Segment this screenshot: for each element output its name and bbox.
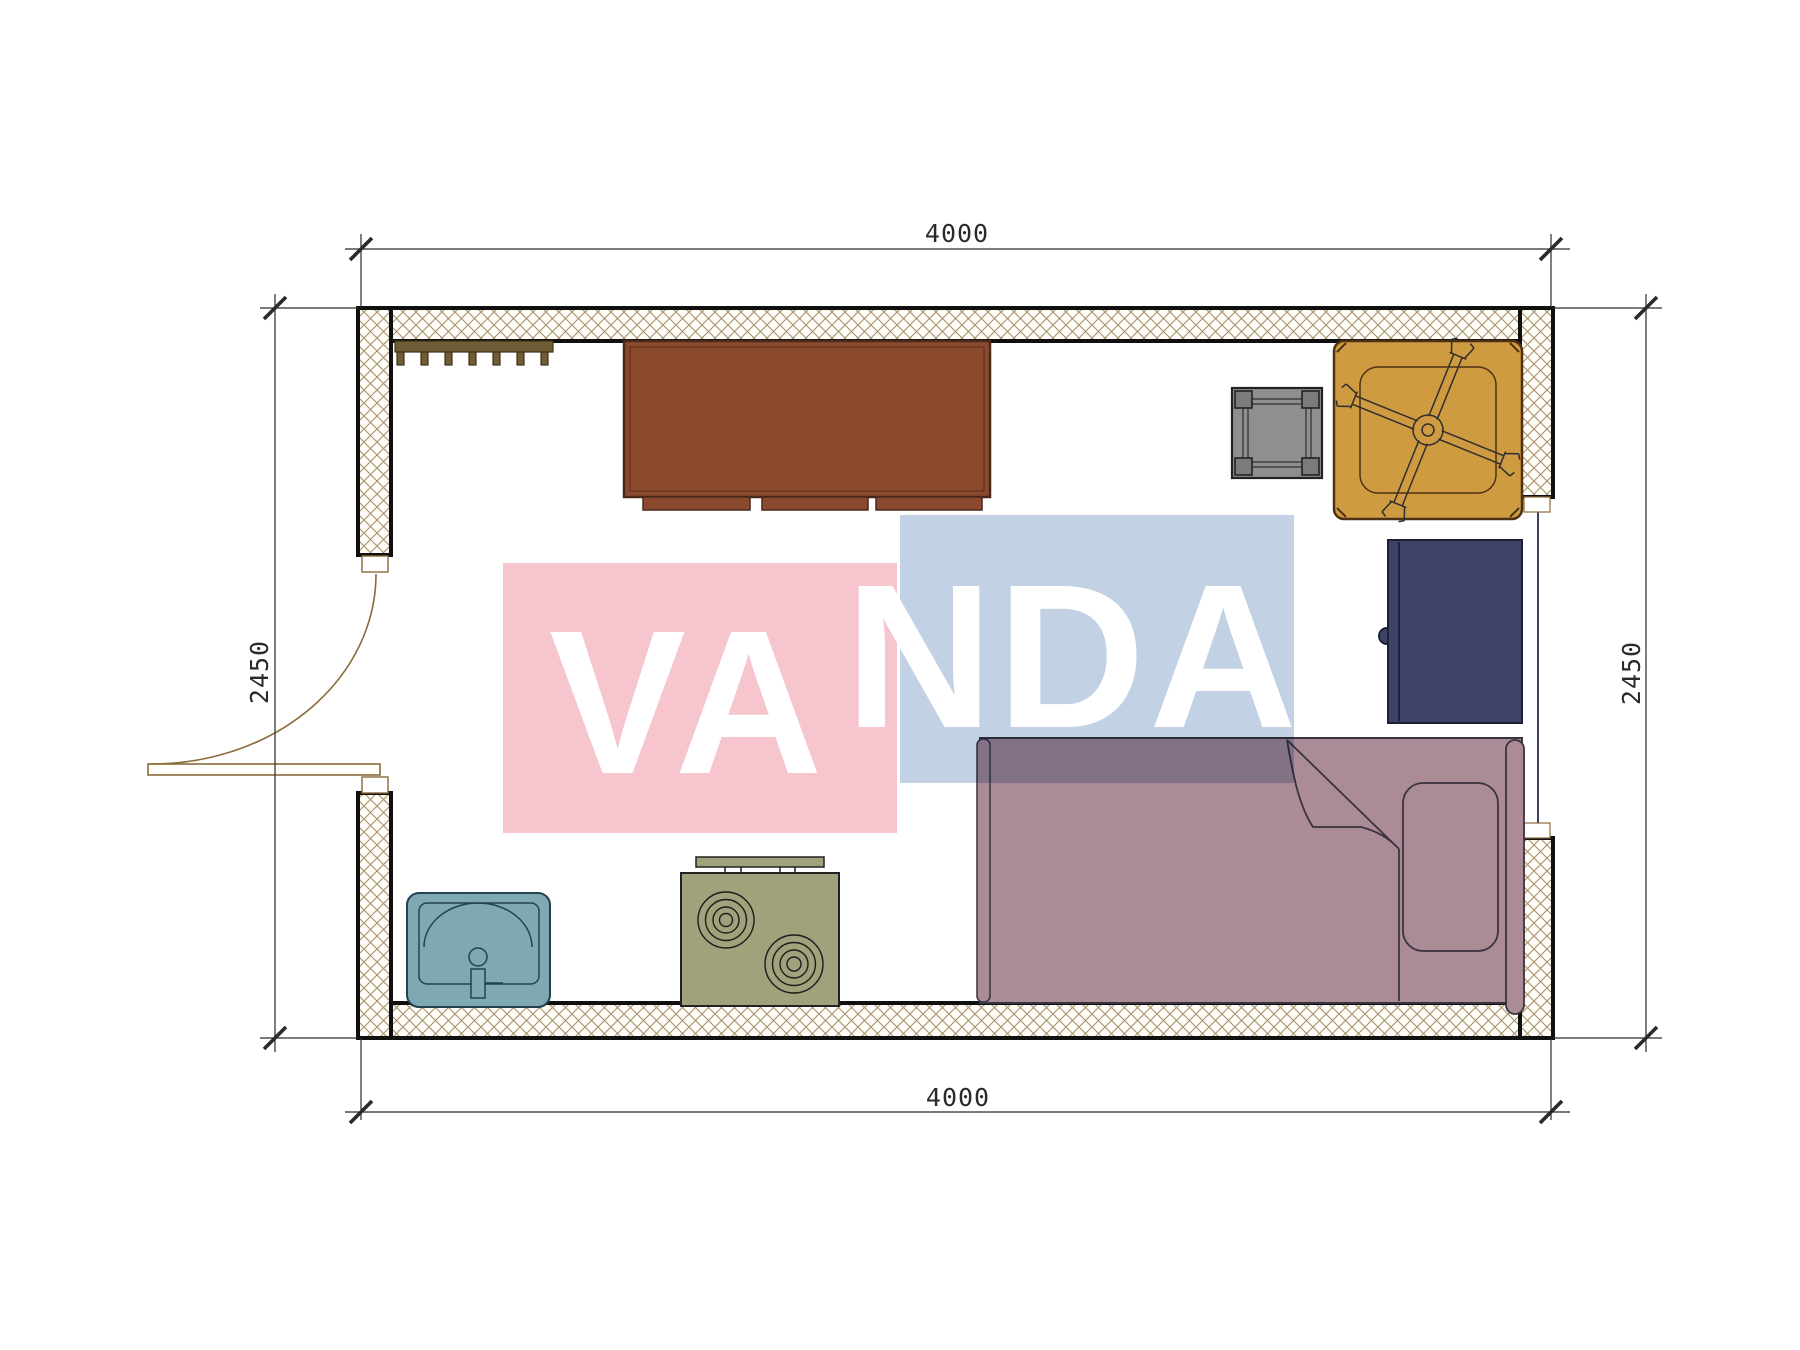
coat-hook [469, 352, 476, 365]
watermark-text-va: VA [549, 588, 827, 817]
sink-faucet [471, 969, 485, 998]
coat-hook [517, 352, 524, 365]
dim-label-bottom: 4000 [926, 1083, 990, 1112]
floor-plan-svg: 4000 4000 2450 2450 [0, 0, 1800, 1350]
door-jamb-top [362, 556, 388, 572]
coat-hook [493, 352, 500, 365]
desk-drawer [876, 497, 982, 510]
stool-leg [1302, 391, 1319, 408]
pedestal-table [1303, 305, 1553, 555]
stool [1232, 388, 1322, 478]
desk [624, 341, 990, 510]
dim-label-left: 2450 [245, 640, 274, 704]
desk-drawer [762, 497, 868, 510]
wall-left-upper [358, 308, 391, 555]
stool-leg [1302, 458, 1319, 475]
wall-right-upper [1520, 308, 1553, 497]
wall-bottom [358, 1003, 1553, 1038]
stove-body [681, 873, 839, 1006]
door-leaf [148, 764, 380, 775]
coat-hook [541, 352, 548, 365]
sink [407, 893, 550, 1007]
floor-plan-canvas: 4000 4000 2450 2450 [0, 0, 1800, 1350]
coat-hook [445, 352, 452, 365]
door-jamb-bottom [362, 777, 388, 793]
stool-leg [1235, 391, 1252, 408]
window-jamb-bottom [1524, 823, 1550, 838]
stool-leg [1235, 458, 1252, 475]
desk-drawer [643, 497, 750, 510]
wall-top [358, 308, 1553, 341]
coat-hook [397, 352, 404, 365]
dim-label-right: 2450 [1617, 641, 1646, 705]
stove [681, 857, 839, 1006]
wall-right-lower [1520, 838, 1553, 1038]
cabinet-body [1388, 540, 1522, 723]
coat-rack-bar [395, 341, 553, 352]
desk-top [624, 341, 990, 497]
coat-hook [421, 352, 428, 365]
watermark-text-nda: NDA [845, 542, 1301, 771]
window-jamb-top [1524, 497, 1550, 512]
wall-left-lower [358, 793, 391, 1038]
headboard [1506, 740, 1524, 1014]
stove-handle [696, 857, 824, 867]
cabinet [1379, 540, 1522, 723]
dim-label-top: 4000 [925, 219, 989, 248]
